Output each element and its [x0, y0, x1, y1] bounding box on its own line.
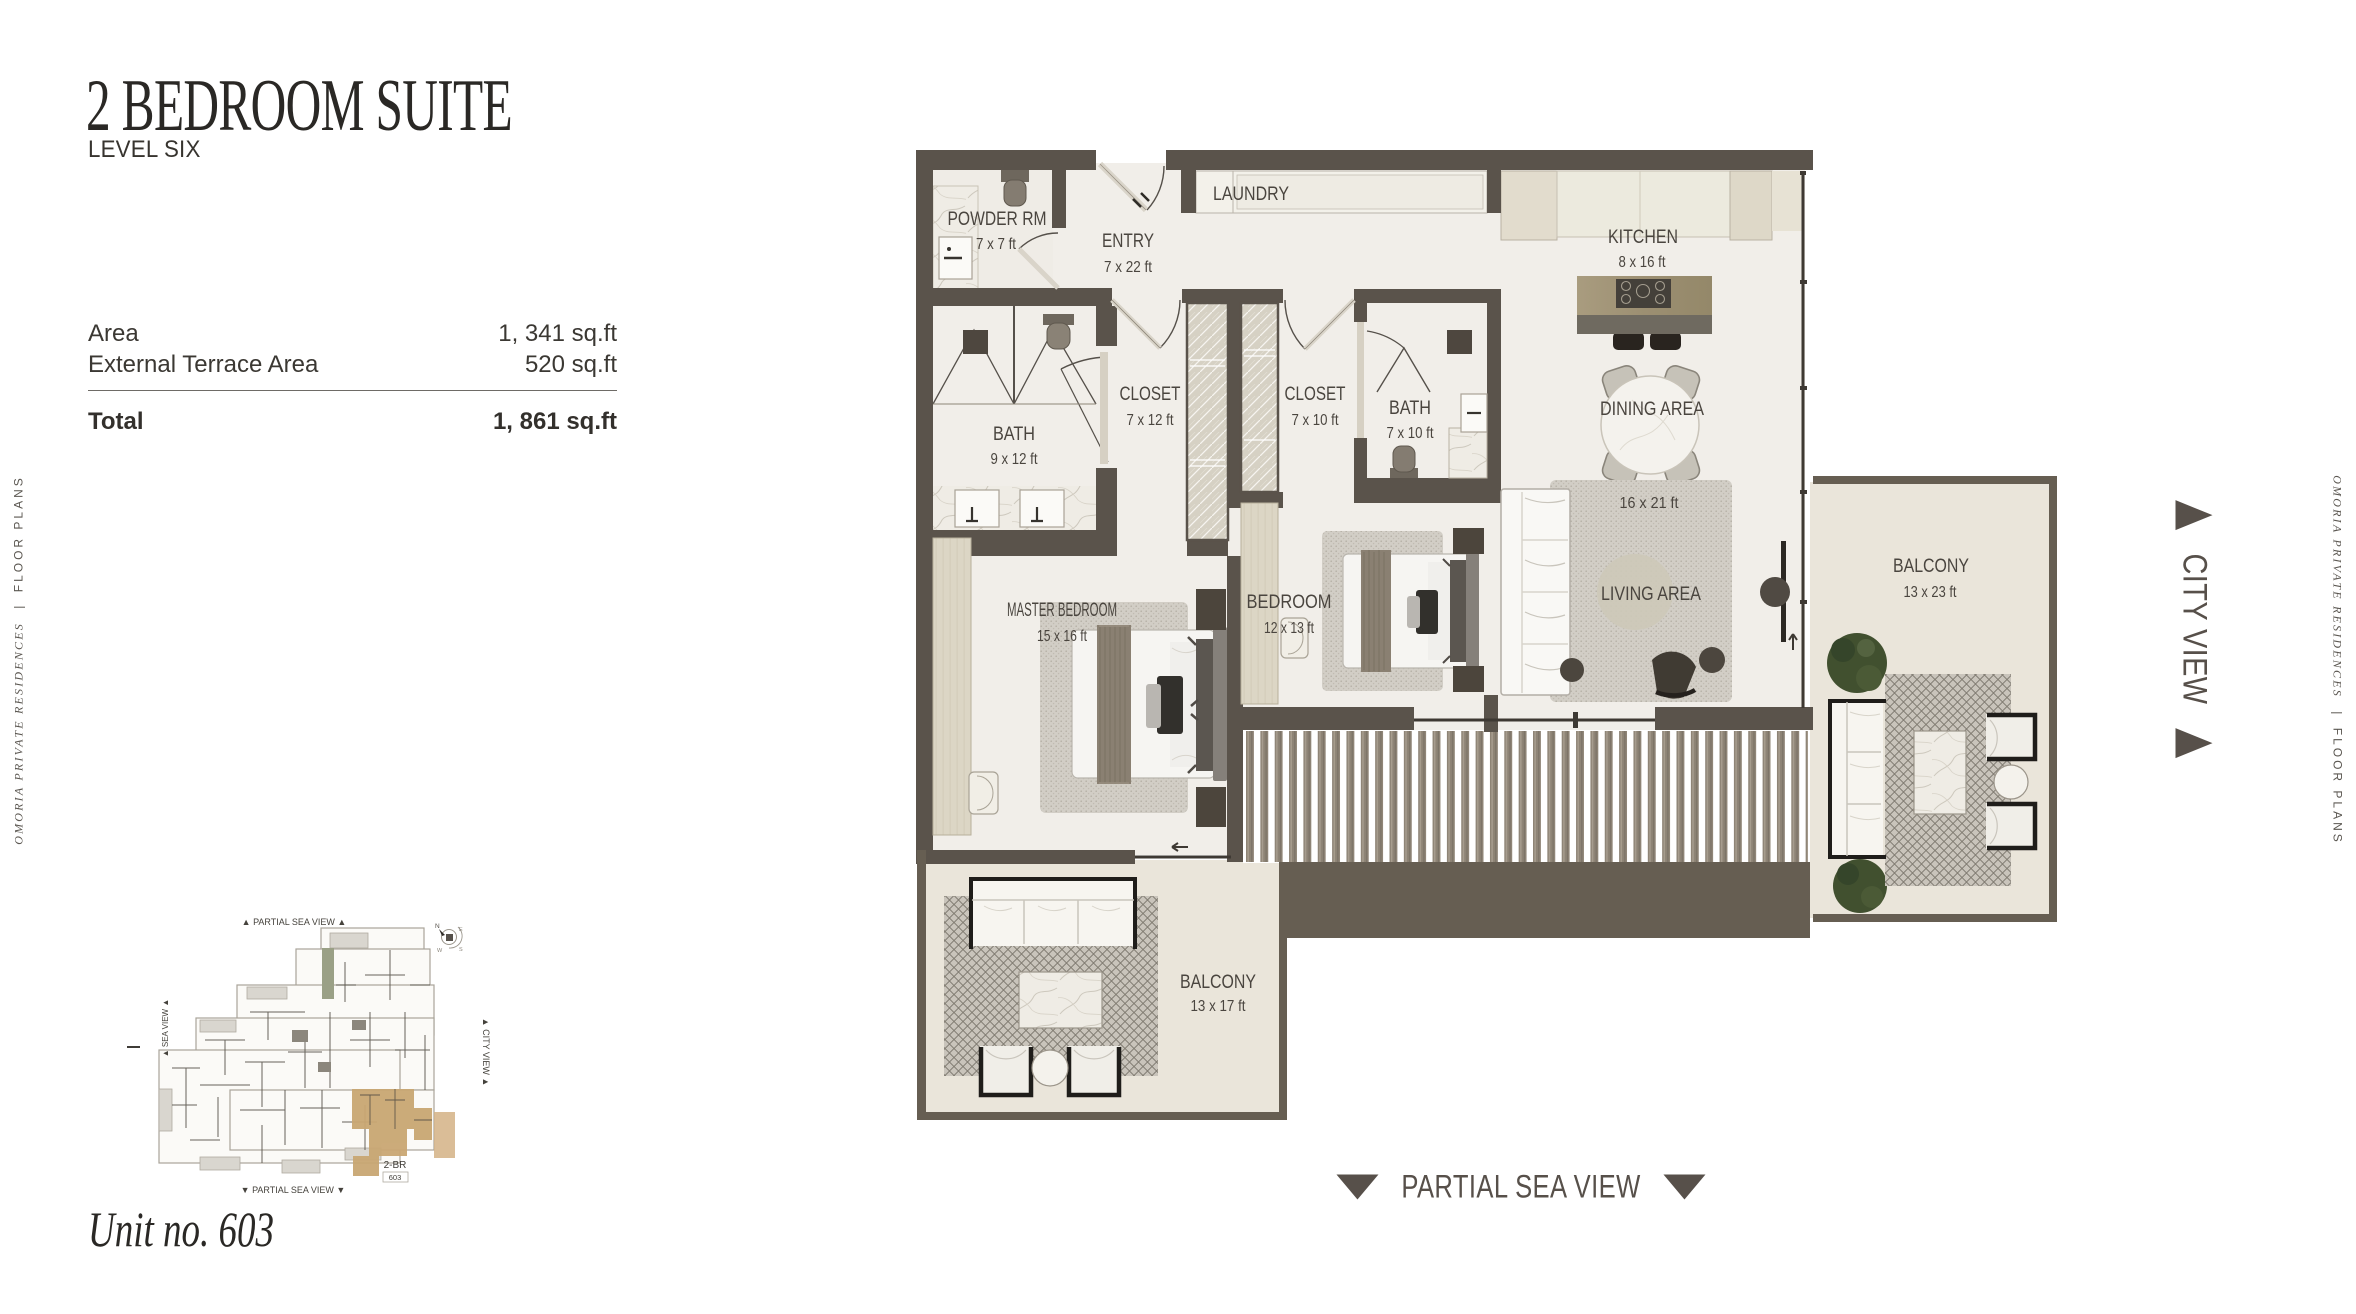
svg-text:2-BR: 2-BR [384, 1160, 407, 1171]
svg-text:7 x 22 ft: 7 x 22 ft [1104, 259, 1152, 276]
svg-text:▲ CITY VIEW ▲: ▲ CITY VIEW ▲ [481, 1018, 491, 1087]
svg-text:8 x 16 ft: 8 x 16 ft [1619, 254, 1666, 271]
svg-text:ENTRY: ENTRY [1102, 231, 1154, 252]
svg-text:7 x 10 ft: 7 x 10 ft [1292, 412, 1339, 429]
svg-text:CLOSET: CLOSET [1120, 384, 1181, 405]
svg-text:MASTER BEDROOM: MASTER BEDROOM [1007, 600, 1117, 621]
svg-text:S: S [459, 947, 463, 953]
svg-text:13 x 17 ft: 13 x 17 ft [1191, 998, 1246, 1015]
svg-text:LIVING AREA: LIVING AREA [1601, 584, 1701, 605]
svg-text:BALCONY: BALCONY [1180, 972, 1256, 993]
svg-text:N: N [435, 923, 440, 930]
svg-text:▲ PARTIAL SEA VIEW ▲: ▲ PARTIAL SEA VIEW ▲ [242, 917, 347, 927]
svg-text:LAUNDRY: LAUNDRY [1213, 184, 1289, 205]
svg-text:W: W [437, 948, 443, 954]
svg-text:KITCHEN: KITCHEN [1608, 227, 1678, 248]
svg-text:7 x 7 ft: 7 x 7 ft [976, 236, 1016, 253]
svg-text:16 x 21 ft: 16 x 21 ft [1620, 495, 1679, 512]
svg-text:DINING AREA: DINING AREA [1600, 399, 1704, 420]
svg-text:▼ PARTIAL SEA VIEW ▼: ▼ PARTIAL SEA VIEW ▼ [241, 1185, 346, 1195]
svg-text:9 x 12 ft: 9 x 12 ft [991, 451, 1038, 468]
svg-text:7 x 12 ft: 7 x 12 ft [1127, 412, 1174, 429]
svg-text:BALCONY: BALCONY [1893, 556, 1969, 577]
svg-text:12 x 13 ft: 12 x 13 ft [1264, 620, 1314, 637]
svg-text:E: E [459, 927, 463, 933]
svg-text:BEDROOM: BEDROOM [1247, 592, 1332, 613]
svg-text:▲ SEA VIEW ▲: ▲ SEA VIEW ▲ [161, 999, 170, 1058]
svg-text:POWDER RM: POWDER RM [948, 209, 1047, 230]
svg-text:BATH: BATH [993, 424, 1035, 445]
svg-text:15 x 16 ft: 15 x 16 ft [1037, 628, 1087, 645]
svg-text:BATH: BATH [1389, 398, 1431, 419]
svg-text:7 x 10 ft: 7 x 10 ft [1387, 425, 1434, 442]
svg-text:CLOSET: CLOSET [1285, 384, 1346, 405]
svg-text:13 x 23 ft: 13 x 23 ft [1904, 584, 1957, 601]
svg-text:603: 603 [389, 1173, 402, 1182]
